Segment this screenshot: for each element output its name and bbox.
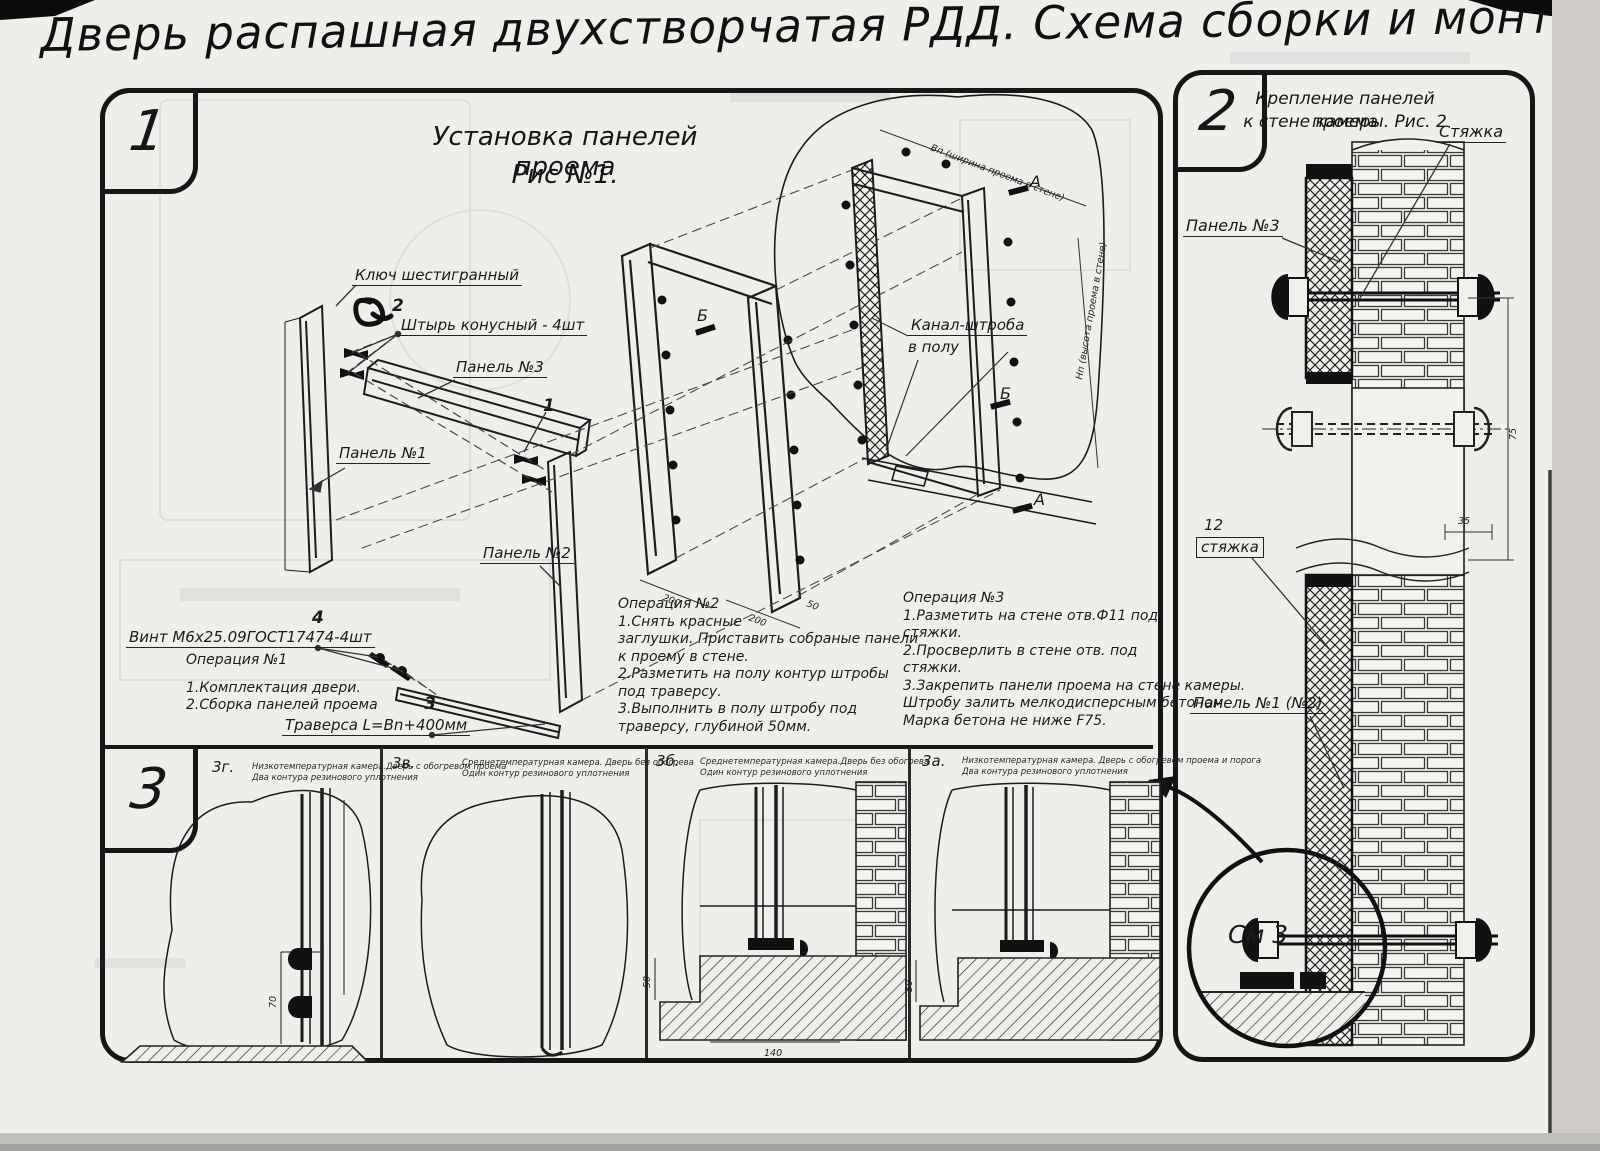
cell-id-3v: 3в. — [392, 754, 415, 772]
section2-heading-line2: к стене камеры. Рис. 2 — [1240, 111, 1450, 134]
section1-frame — [100, 88, 1163, 1063]
operation-1-title: Операция №1 — [186, 652, 378, 670]
section-mark-a-bottom: А — [1034, 490, 1045, 509]
op2-line: 2.Разметить на полу контур штробы — [618, 666, 918, 684]
cell-divider-1 — [380, 748, 383, 1058]
op2-line: к проему в стене. — [618, 649, 918, 667]
operation-2-block: Операция №2 1.Снять красные заглушки. Пр… — [618, 596, 918, 736]
op2-line: под траверсу. — [618, 684, 918, 702]
label-panel2: Панель №2 — [480, 544, 574, 564]
cell-divider-2 — [645, 748, 648, 1058]
scanned-drawing-page: Дверь распашная двухстворчатая РДД. Схем… — [0, 0, 1600, 1151]
label-panel1: Панель №1 — [336, 444, 430, 464]
op3-line: стяжки. — [903, 625, 1245, 643]
op2-line: заглушки. Приставить собраные панели — [618, 631, 918, 649]
cell-3v-caption2: Один контур резинового уплотнения — [462, 769, 694, 780]
detail-reference-see3: См 3 — [1228, 920, 1288, 949]
operation-1-block: Операция №1 1.Комплектация двери. 2.Сбор… — [186, 652, 378, 715]
callout-4: 4 — [312, 608, 324, 628]
label-hex-key: Ключ шестигранный — [352, 266, 522, 286]
cell-3a-caption1: Низкотемпературная камера. Дверь с обогр… — [962, 756, 1261, 767]
label-channel-line1: Канал-штроба — [908, 316, 1027, 336]
label-panel3-sec2: Панель №3 — [1183, 216, 1283, 237]
cell-3b-caption1: Среднетемпературная камера.Дверь без обо… — [700, 757, 929, 768]
cell-divider-3 — [908, 748, 911, 1058]
op3-line: Марка бетона не ниже F75. — [903, 713, 1245, 731]
operation-2-title: Операция №2 — [618, 596, 918, 614]
callout-12: 12 — [1204, 516, 1223, 534]
label-traverse: Траверса L=Bn+400мм — [282, 716, 470, 736]
label-tie-rod: Стяжка — [1436, 122, 1506, 143]
cell-3b-caption2: Один контур резинового уплотнения — [700, 768, 929, 779]
callout-1: 1 — [543, 396, 555, 416]
op2-line: 3.Выполнить в полу штробу под — [618, 701, 918, 719]
op1-line: 1.Комплектация двери. — [186, 680, 378, 698]
label-panel3: Панель №3 — [453, 358, 547, 378]
op3-line: 3.Закрепить панели проема на стене камер… — [903, 678, 1245, 696]
cell-id-3g: 3г. — [212, 758, 234, 776]
section-mark-b-mid: Б — [697, 306, 708, 325]
section3-divider — [105, 745, 1153, 749]
section-mark-b-right: Б — [1000, 384, 1011, 403]
section1-heading-line2: Рис №1. — [395, 160, 735, 190]
cell-3a-caption2: Два контура резинового уплотнения — [962, 767, 1261, 778]
label-screw: Винт М6х25.09ГОСТ17474-4шт — [126, 628, 375, 648]
op3-line: стяжки. — [903, 660, 1245, 678]
drawing-title: Дверь распашная двухстворчатая РДД. Схем… — [40, 0, 1530, 62]
operation-3-title: Операция №3 — [903, 590, 1245, 608]
op3-line: 2.Просверлить в стене отв. под — [903, 643, 1245, 661]
op1-line: 2.Сборка панелей проема — [186, 697, 378, 715]
callout-3: 3 — [424, 694, 436, 714]
cell-id-3b: 3б. — [656, 752, 680, 770]
cell-id-3a: 3а. — [922, 752, 946, 770]
section-mark-a-top: А — [1030, 172, 1041, 191]
op3-line: 1.Разметить на стене отв.Ф11 под — [903, 608, 1245, 626]
label-pin: Штырь конусный - 4шт — [398, 316, 587, 336]
label-channel-line2: в полу — [908, 338, 959, 356]
op2-line: траверсу, глубиной 50мм. — [618, 719, 918, 737]
callout-2: 2 — [392, 296, 404, 316]
label-tie-boxed: стяжка — [1196, 537, 1264, 558]
label-panel12: Панель №1 (№2) — [1190, 694, 1325, 714]
op2-line: 1.Снять красные — [618, 614, 918, 632]
